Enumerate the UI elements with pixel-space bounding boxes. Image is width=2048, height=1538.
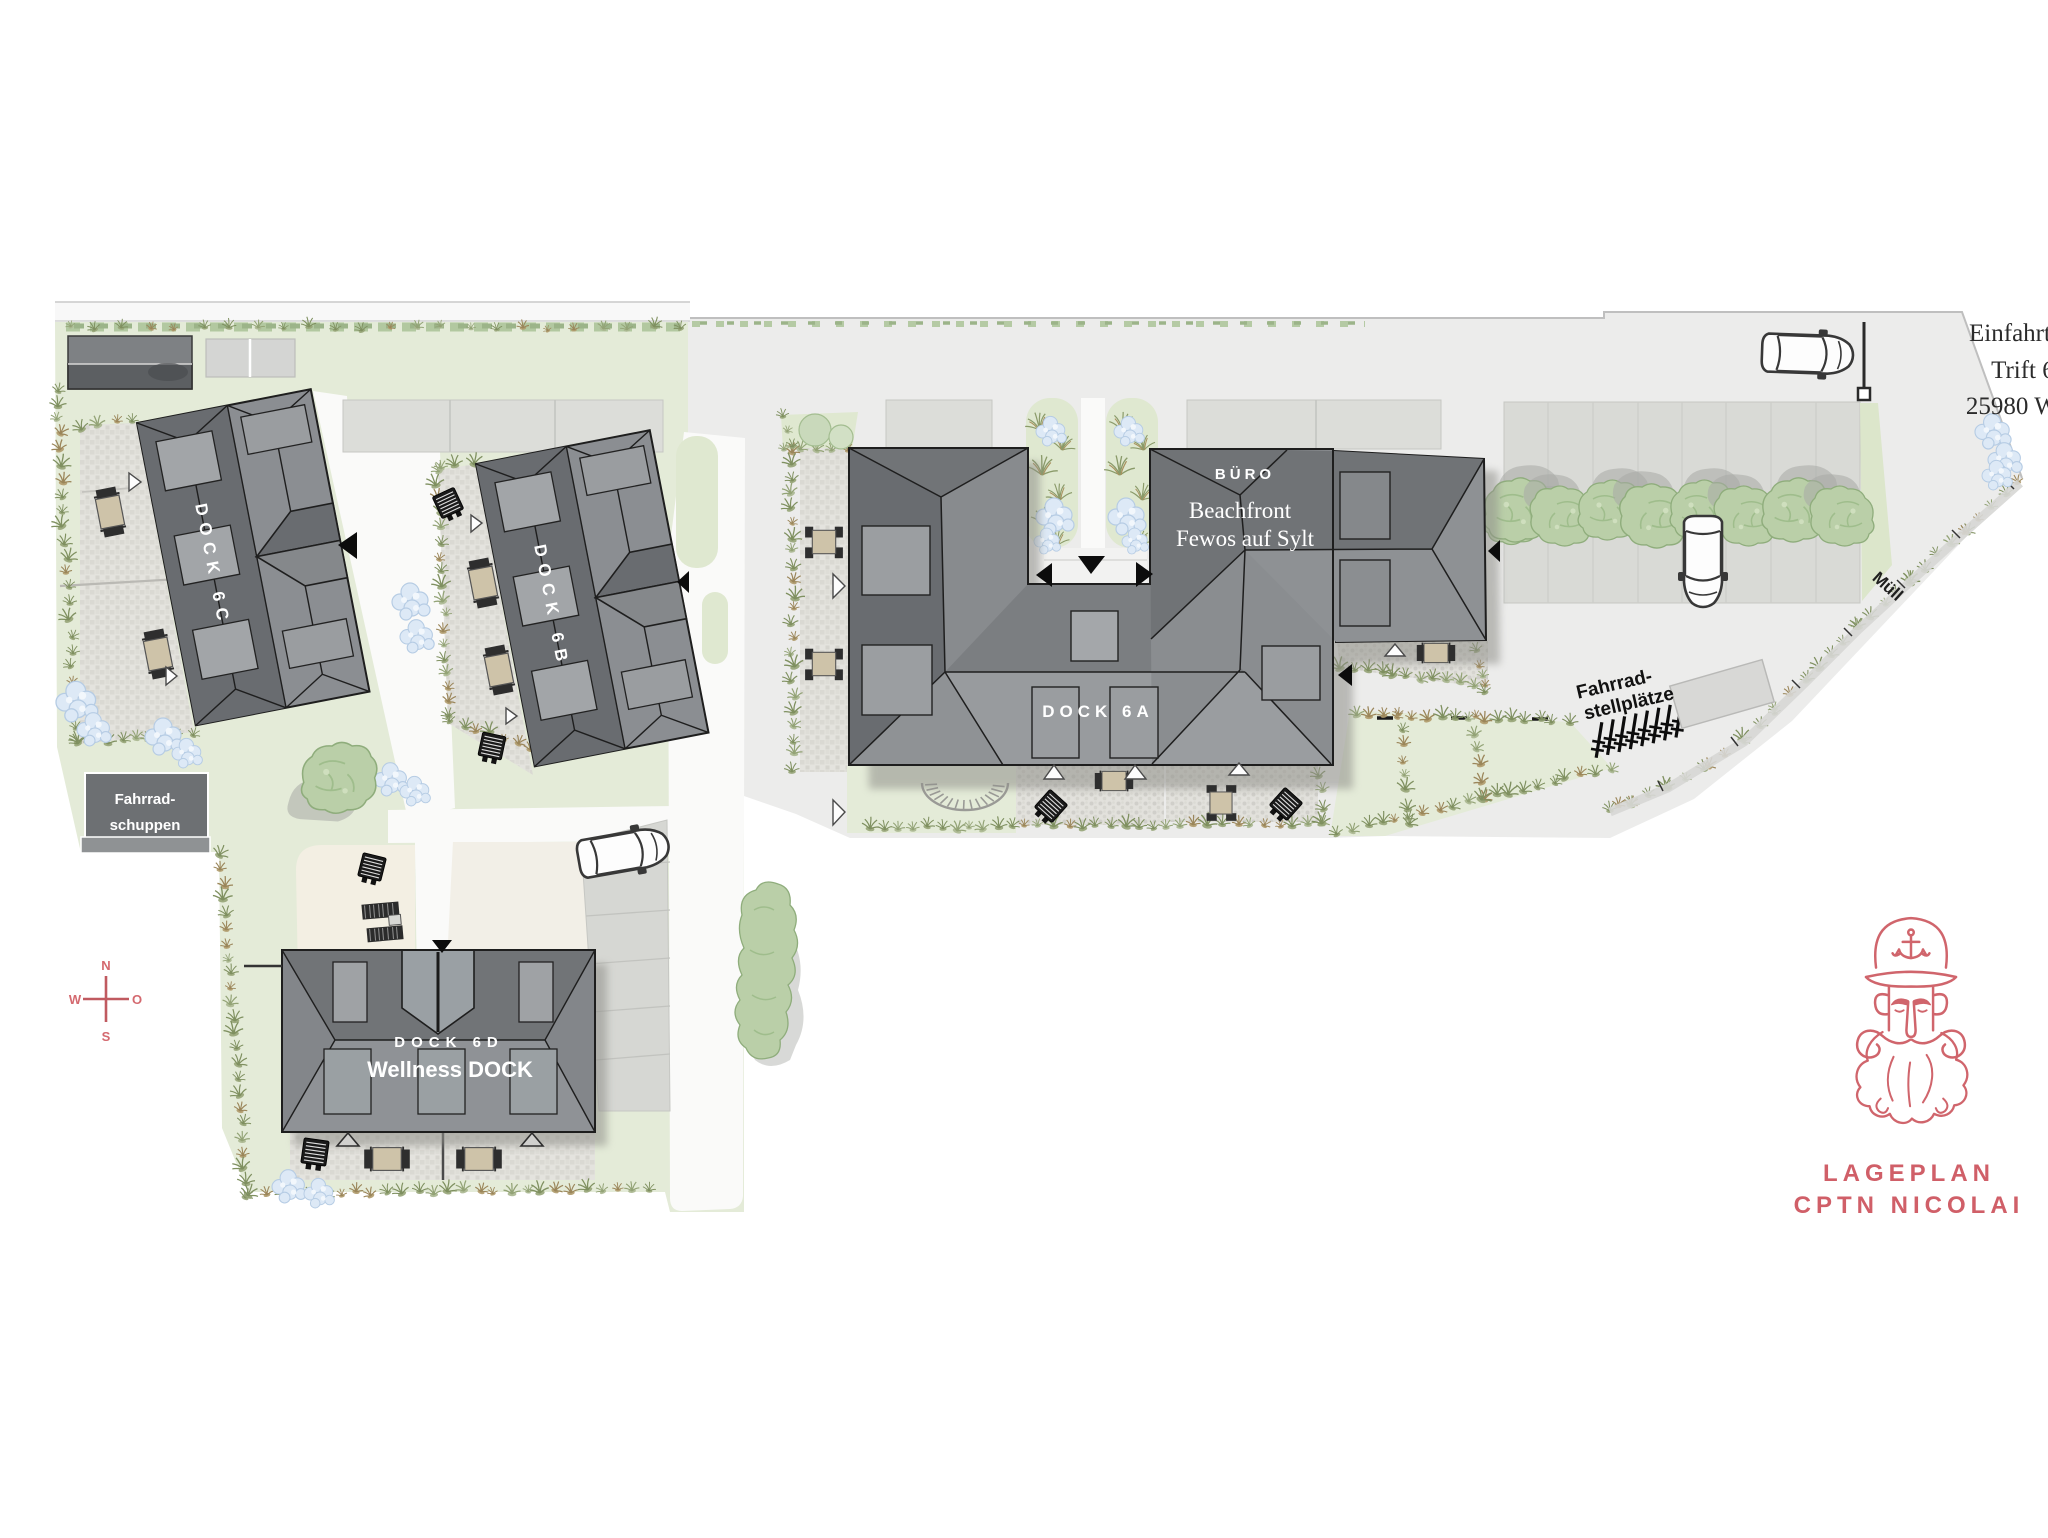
- svg-text:Einfahrt: Einfahrt: [1969, 320, 2048, 347]
- svg-text:schuppen: schuppen: [110, 817, 181, 834]
- svg-text:W: W: [69, 992, 82, 1007]
- svg-text:Fahrrad-: Fahrrad-: [115, 791, 176, 808]
- svg-text:Fewos auf Sylt: Fewos auf Sylt: [1176, 526, 1315, 551]
- svg-text:BÜRO: BÜRO: [1215, 466, 1275, 483]
- svg-text:Wellness DOCK: Wellness DOCK: [367, 1057, 533, 1082]
- svg-text:O: O: [132, 992, 142, 1007]
- svg-text:25980 Westerland: 25980 Westerland: [1966, 393, 2048, 420]
- svg-text:N: N: [101, 958, 110, 973]
- svg-text:CPTN NICOLAI: CPTN NICOLAI: [1794, 1192, 2025, 1219]
- svg-text:S: S: [102, 1029, 111, 1044]
- svg-text:Trift 6 a-d: Trift 6 a-d: [1991, 357, 2048, 384]
- svg-text:LAGEPLAN: LAGEPLAN: [1823, 1160, 1995, 1187]
- svg-text:DOCK 6A: DOCK 6A: [1042, 702, 1154, 721]
- svg-text:DOCK 6D: DOCK 6D: [394, 1034, 504, 1051]
- svg-text:Beachfront: Beachfront: [1189, 498, 1292, 523]
